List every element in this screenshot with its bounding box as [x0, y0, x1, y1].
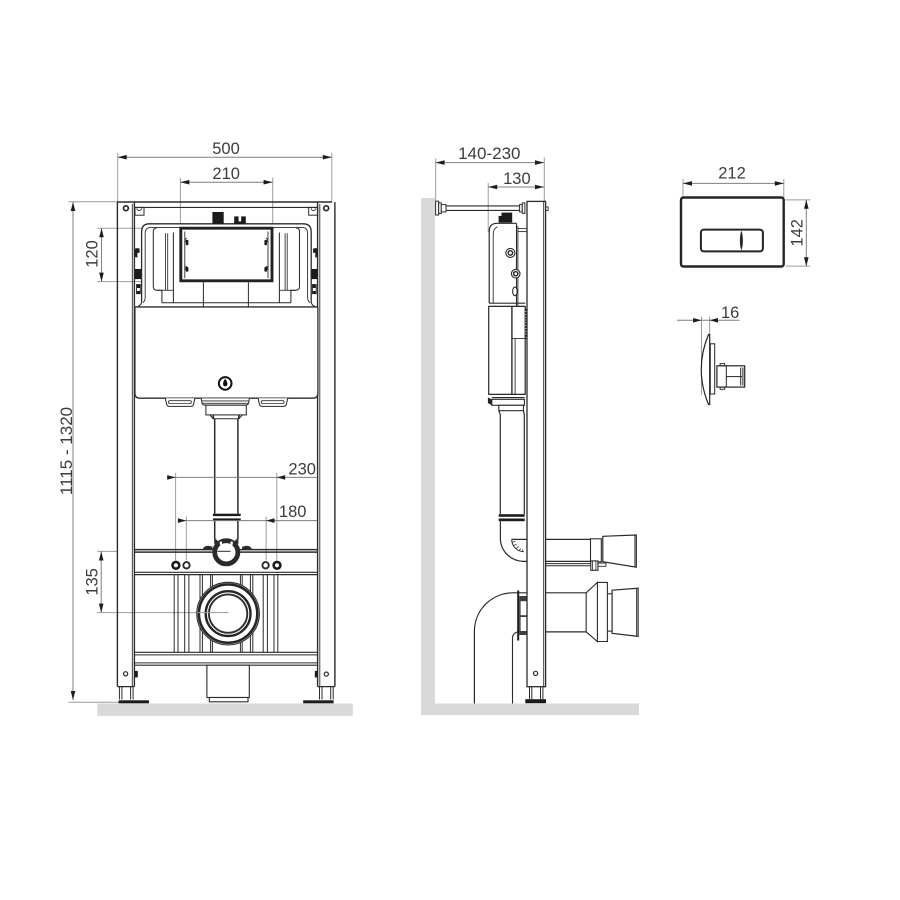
svg-text:210: 210	[212, 165, 240, 183]
svg-text:1115 - 1320: 1115 - 1320	[57, 407, 76, 495]
svg-text:230: 230	[288, 460, 316, 478]
svg-text:140-230: 140-230	[458, 144, 520, 163]
svg-text:142: 142	[788, 219, 806, 247]
svg-text:180: 180	[279, 503, 307, 521]
svg-text:500: 500	[212, 140, 240, 158]
svg-text:130: 130	[503, 170, 531, 188]
svg-text:16: 16	[721, 304, 739, 322]
svg-text:120: 120	[84, 240, 102, 268]
svg-text:212: 212	[718, 165, 746, 183]
svg-text:135: 135	[84, 568, 102, 596]
